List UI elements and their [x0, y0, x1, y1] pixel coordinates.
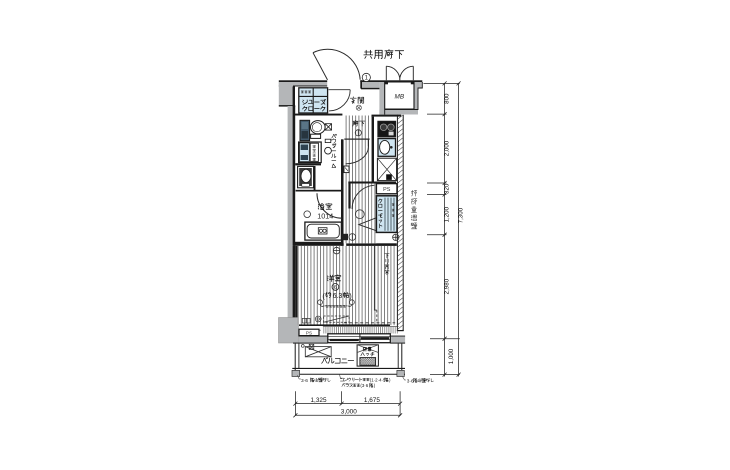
- svg-text:1,325: 1,325: [311, 397, 327, 404]
- svg-text:2,000: 2,000: [444, 140, 451, 156]
- svg-text:320: 320: [444, 183, 451, 194]
- svg-text:2,980: 2,980: [444, 278, 451, 294]
- svg-text:MB: MB: [395, 94, 405, 101]
- svg-text:800: 800: [444, 93, 451, 104]
- svg-text:(1·2·4·5: (1·2·4·5: [370, 378, 386, 383]
- svg-text:PS: PS: [306, 330, 312, 335]
- svg-text:6.3: 6.3: [333, 293, 343, 300]
- svg-text:6: 6: [334, 285, 337, 291]
- svg-text:1014: 1014: [317, 211, 333, 220]
- svg-text:7,300: 7,300: [458, 207, 465, 223]
- svg-text:1,200: 1,200: [444, 206, 451, 222]
- svg-text:3·6: 3·6: [301, 378, 308, 384]
- svg-text:3,000: 3,000: [341, 409, 357, 416]
- svg-text:PS: PS: [383, 187, 391, 193]
- svg-text:1,000: 1,000: [448, 348, 455, 364]
- svg-text:(3·6: (3·6: [360, 383, 368, 388]
- svg-text:3·6: 3·6: [407, 378, 414, 384]
- svg-text:): ): [349, 293, 351, 300]
- svg-text:1,675: 1,675: [364, 397, 380, 404]
